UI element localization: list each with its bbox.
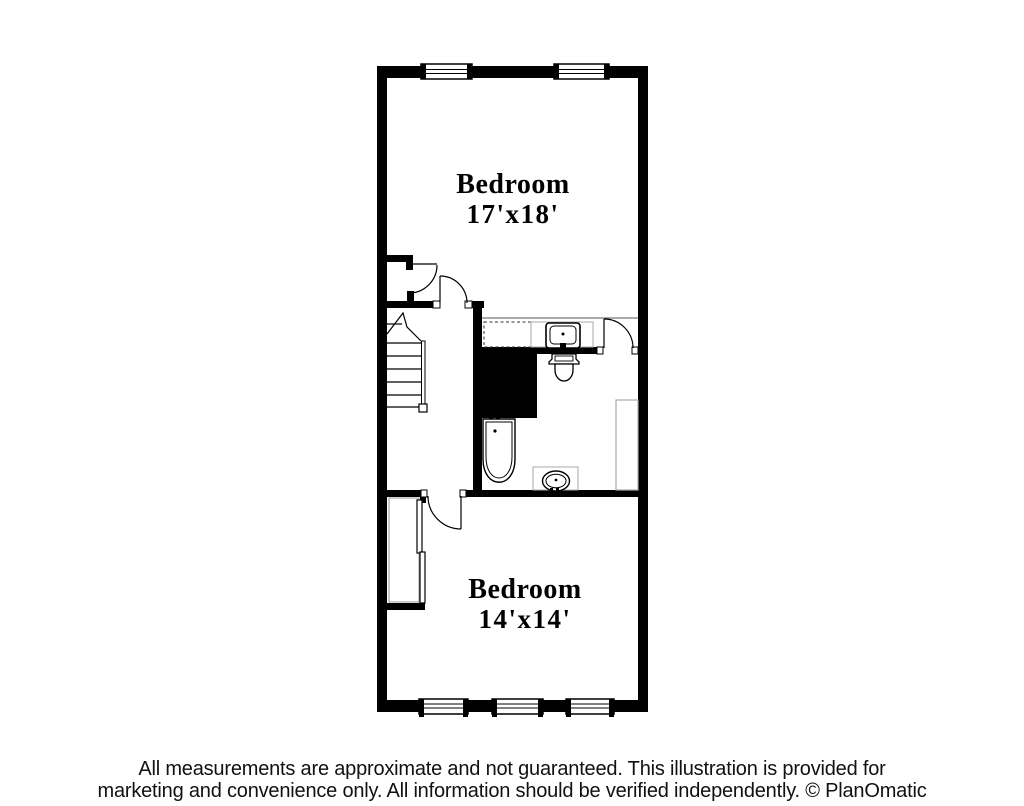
window-icon xyxy=(421,64,472,79)
wall-hall-north-west xyxy=(387,301,433,308)
interior-walls xyxy=(387,255,648,610)
door-bedroom2 xyxy=(428,496,461,529)
chase xyxy=(482,351,537,418)
room-label-bedroom2: Bedroom 14'x14' xyxy=(390,575,660,634)
floor-plan-drawing xyxy=(0,0,1024,806)
wall-bath-west xyxy=(473,301,482,497)
room-name: Bedroom xyxy=(378,170,648,200)
disclaimer-text: All measurements are approximate and not… xyxy=(0,759,1024,802)
closet-shelf-dashed xyxy=(484,322,531,347)
disclaimer-line-1: All measurements are approximate and not… xyxy=(0,759,1024,781)
room-label-bedroom1: Bedroom 17'x18' xyxy=(378,170,648,229)
toilet-icon xyxy=(549,354,579,381)
sink-icon xyxy=(546,323,580,353)
window-icon xyxy=(566,699,614,717)
room-dimensions: 17'x18' xyxy=(378,200,648,229)
bathtub-icon xyxy=(483,415,515,482)
built-in-cabinet xyxy=(616,400,638,490)
door-closet1 xyxy=(409,264,437,293)
wall-closet1-stub xyxy=(406,255,413,270)
window-icon xyxy=(554,64,609,79)
room-name: Bedroom xyxy=(390,575,660,605)
window-icon xyxy=(419,699,468,717)
wall-south-west xyxy=(387,490,421,497)
window-icon xyxy=(492,699,543,717)
floor-plan-page: Bedroom 17'x18' Bedroom 14'x14' All meas… xyxy=(0,0,1024,806)
wall-left xyxy=(377,66,387,712)
door-bedroom1 xyxy=(440,276,467,303)
disclaimer-line-2: marketing and convenience only. All info… xyxy=(0,781,1024,803)
door-nook xyxy=(604,319,633,348)
room-dimensions: 14'x14' xyxy=(390,605,660,634)
windows-bottom xyxy=(419,699,614,717)
staircase xyxy=(387,313,427,412)
